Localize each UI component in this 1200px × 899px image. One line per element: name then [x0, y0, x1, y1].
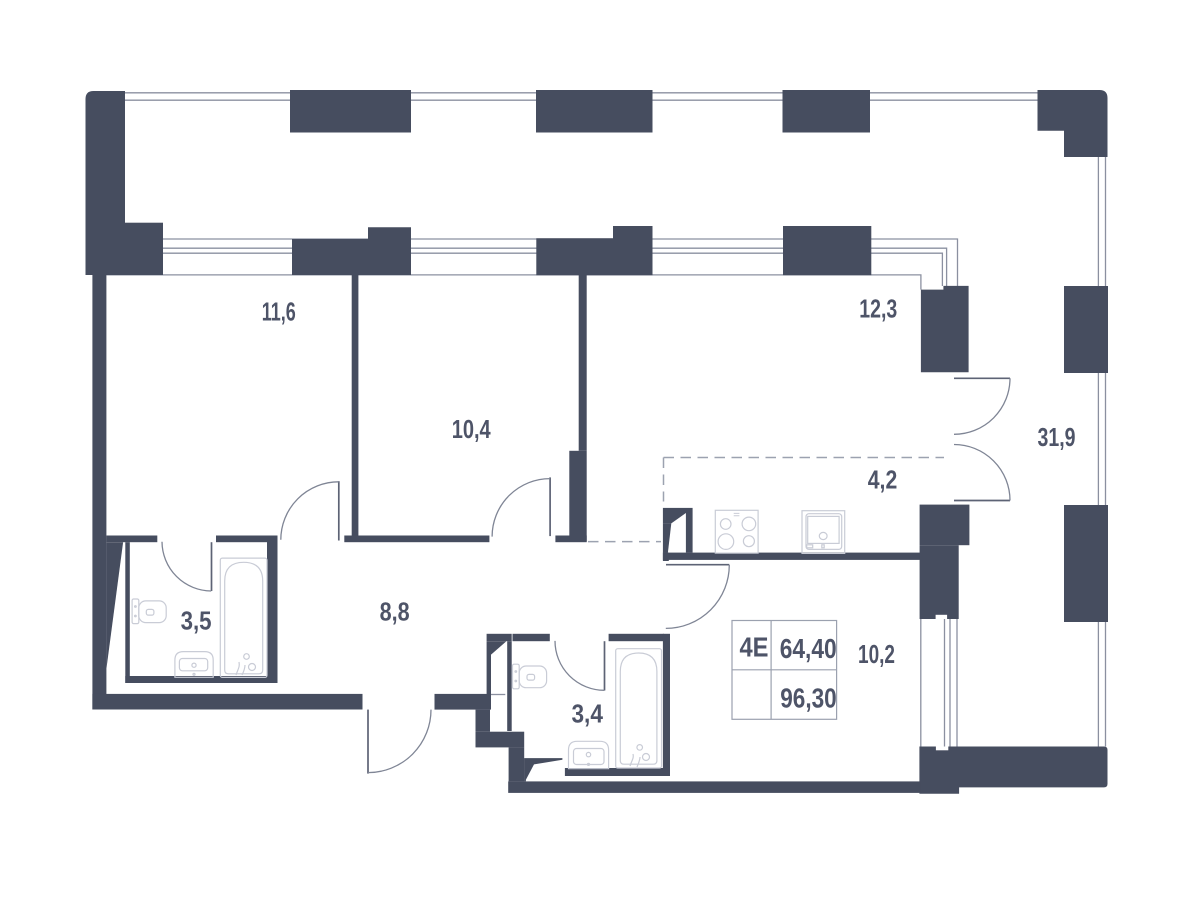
- svg-text:3,5: 3,5: [181, 606, 212, 636]
- svg-text:12,3: 12,3: [859, 294, 897, 324]
- svg-text:10,2: 10,2: [858, 639, 895, 669]
- svg-text:3,4: 3,4: [571, 699, 603, 729]
- svg-text:10,4: 10,4: [452, 414, 491, 444]
- svg-text:31,9: 31,9: [1038, 422, 1076, 452]
- svg-text:8,8: 8,8: [380, 597, 410, 627]
- svg-text:4Е: 4Е: [740, 632, 769, 663]
- svg-text:11,6: 11,6: [262, 297, 296, 327]
- svg-text:64,40: 64,40: [780, 633, 837, 664]
- svg-text:96,30: 96,30: [780, 682, 837, 713]
- svg-text:4,2: 4,2: [868, 464, 898, 494]
